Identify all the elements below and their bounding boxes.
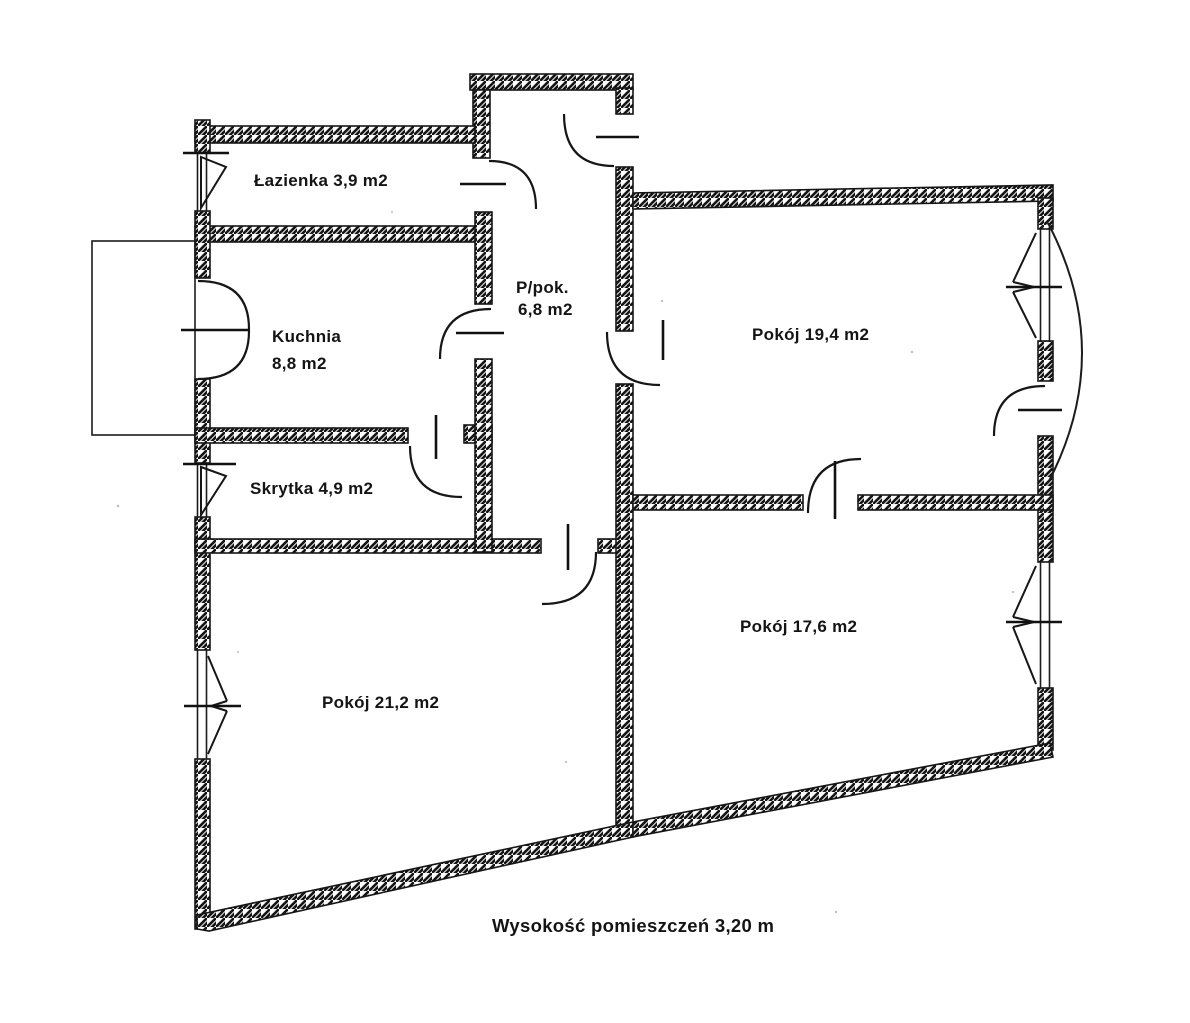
window-icon-skrytka bbox=[183, 463, 236, 517]
wall-lazienka-kuchnia bbox=[195, 226, 490, 242]
scanned-floor-plan: Łazienka 3,9 m2 Kuchnia 8,8 m2 P/pok. 6,… bbox=[0, 0, 1190, 1023]
door-arc-lazienka bbox=[460, 161, 536, 209]
window-icon-pokoj17 bbox=[1006, 562, 1062, 688]
room-label-pokoj21: Pokój 21,2 m2 bbox=[322, 693, 439, 712]
door-arc-kitchen-balcony bbox=[181, 281, 250, 379]
room-label-pokoj19: Pokój 19,4 m2 bbox=[752, 325, 869, 344]
wall-right-outer-1 bbox=[1038, 198, 1053, 229]
wall-left-outer-5 bbox=[195, 759, 210, 929]
room-label-pokoj17: Pokój 17,6 m2 bbox=[740, 617, 857, 636]
room-label-skrytka: Skrytka 4,9 m2 bbox=[250, 479, 373, 498]
wall-left-outer-4 bbox=[195, 517, 210, 650]
room-area-ppok: 6,8 m2 bbox=[518, 300, 573, 319]
wall-pokoj19-top bbox=[633, 185, 1053, 209]
floor-plan-drawing: Łazienka 3,9 m2 Kuchnia 8,8 m2 P/pok. 6,… bbox=[0, 0, 1190, 1023]
wall-kuchnia-south bbox=[195, 428, 408, 443]
room-area-kuchnia: 8,8 m2 bbox=[272, 354, 327, 373]
door-arc-kuchnia bbox=[440, 309, 504, 359]
door-arc-balcony bbox=[994, 386, 1062, 436]
wall-south-diagonal-right bbox=[633, 743, 1053, 837]
wall-divider-19-17-b bbox=[858, 495, 1053, 510]
wall-lazienka-top bbox=[195, 126, 475, 143]
wall-right-outer-4 bbox=[1038, 688, 1053, 750]
wall-right-outer-2 bbox=[1038, 341, 1053, 381]
window-icon-pokoj21 bbox=[184, 650, 241, 759]
room-label-lazienka: Łazienka 3,9 m2 bbox=[254, 171, 388, 190]
wall-vestibule-right bbox=[616, 88, 633, 114]
wall-vestibule-top bbox=[470, 74, 633, 90]
window-icon-pokoj19 bbox=[1006, 229, 1062, 341]
wall-left-outer-1 bbox=[195, 120, 210, 153]
room-label-kuchnia: Kuchnia bbox=[272, 327, 341, 346]
wall-vestibule-left bbox=[473, 90, 490, 158]
wall-left-outer-2 bbox=[195, 211, 210, 278]
plan-caption: Wysokość pomieszczeń 3,20 m bbox=[492, 915, 774, 936]
walls bbox=[195, 74, 1053, 931]
kitchen-balcony-outline bbox=[92, 241, 195, 435]
door-arc-pokoj19-pokoj17 bbox=[808, 459, 861, 519]
wall-divider-19-17-a bbox=[633, 495, 803, 510]
window-icon-lazienka bbox=[183, 153, 229, 211]
wall-corridor-east-b bbox=[616, 384, 633, 830]
door-arc-entry bbox=[564, 114, 639, 166]
door-arc-skrytka bbox=[410, 415, 462, 497]
door-arc-pokoj21 bbox=[542, 524, 596, 604]
wall-corridor-west-a bbox=[475, 212, 492, 304]
wall-corridor-west-b bbox=[475, 359, 492, 552]
room-label-ppok: P/pok. bbox=[516, 278, 569, 297]
wall-corridor-east-a bbox=[616, 167, 633, 331]
wall-left-outer-3 bbox=[195, 379, 210, 463]
